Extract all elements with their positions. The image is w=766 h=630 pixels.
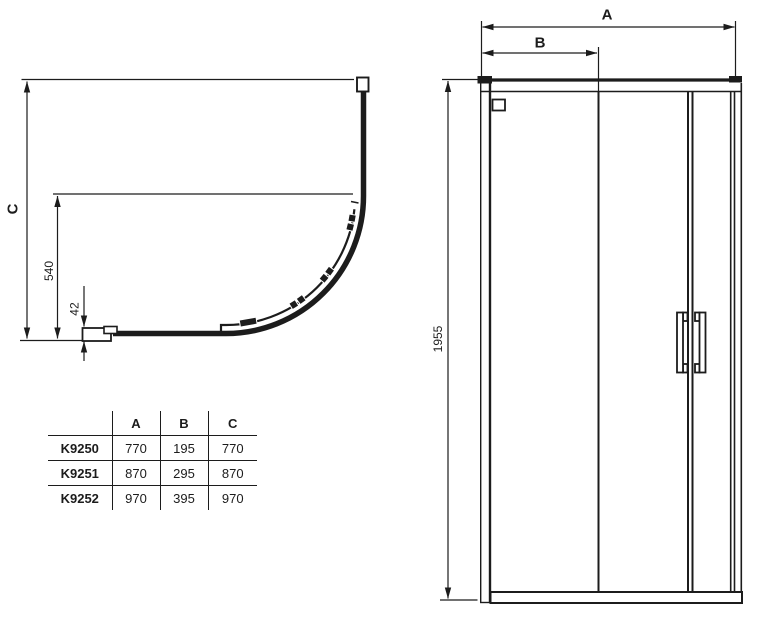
value-cell: 970 xyxy=(208,486,257,511)
door-end-bracket xyxy=(239,317,257,327)
dim-label-540: 540 xyxy=(42,261,56,281)
spec-table: A B C K9250 770 195 770 K9251 870 295 87… xyxy=(48,411,257,510)
drawings-svg: C 540 42 xyxy=(0,0,766,630)
model-cell: K9251 xyxy=(48,461,112,486)
dim-label-a: A xyxy=(602,7,613,24)
door-arc-start-tick xyxy=(351,202,359,204)
value-cell: 970 xyxy=(112,486,160,511)
dimension-a: A xyxy=(482,7,736,78)
spec-table-grid: A B C K9250 770 195 770 K9251 870 295 87… xyxy=(48,411,257,510)
wall-profile-tab xyxy=(104,327,117,334)
dim-label-42: 42 xyxy=(68,302,82,316)
value-cell: 870 xyxy=(112,461,160,486)
roller-bracket xyxy=(346,223,355,232)
dimension-c: C xyxy=(5,82,28,339)
quadrant-track-outline xyxy=(113,91,364,334)
value-cell: 770 xyxy=(208,436,257,461)
left-handle-bar xyxy=(677,313,683,373)
table-row: K9251 870 295 870 xyxy=(48,461,257,486)
right-panel-edges xyxy=(731,83,742,592)
sliding-door-arc xyxy=(221,202,359,332)
value-cell: 395 xyxy=(160,486,208,511)
door-handles xyxy=(677,313,706,373)
top-rail xyxy=(478,76,743,92)
corner-bracket xyxy=(357,78,369,92)
table-header-a: A xyxy=(112,411,160,436)
table-header-b: B xyxy=(160,411,208,436)
bottom-rail xyxy=(491,592,743,603)
dim-label-c: C xyxy=(5,203,22,214)
model-cell: K9250 xyxy=(48,436,112,461)
wall-profile-corner xyxy=(357,78,369,92)
dimension-42: 42 xyxy=(68,286,85,361)
dimension-height: 1955 xyxy=(431,80,480,601)
wall-profile-bottom xyxy=(83,327,118,342)
table-corner-cell xyxy=(48,411,112,436)
roller-bracket xyxy=(348,214,356,222)
top-rail-right-cap xyxy=(729,76,742,83)
dim-label-1955: 1955 xyxy=(431,325,445,352)
door-overlap-edges xyxy=(688,92,693,593)
value-cell: 870 xyxy=(208,461,257,486)
left-wall-profile xyxy=(480,83,505,603)
table-header-row: A B C xyxy=(48,411,257,436)
right-handle-bar xyxy=(700,313,706,373)
value-cell: 770 xyxy=(112,436,160,461)
table-header-c: C xyxy=(208,411,257,436)
table-row: K9250 770 195 770 xyxy=(48,436,257,461)
top-rail-left-cap xyxy=(478,76,493,84)
value-cell: 295 xyxy=(160,461,208,486)
elevation-view: A B 1955 xyxy=(431,7,742,604)
value-cell: 195 xyxy=(160,436,208,461)
dimension-b: B xyxy=(483,35,599,93)
table-row: K9252 970 395 970 xyxy=(48,486,257,511)
dimension-540: 540 xyxy=(42,196,58,339)
wall-clip-bracket xyxy=(493,100,506,111)
plan-view: C 540 42 xyxy=(5,78,369,362)
model-cell: K9252 xyxy=(48,486,112,511)
dim-label-b: B xyxy=(535,35,546,52)
technical-drawing-page: C 540 42 xyxy=(0,0,766,630)
